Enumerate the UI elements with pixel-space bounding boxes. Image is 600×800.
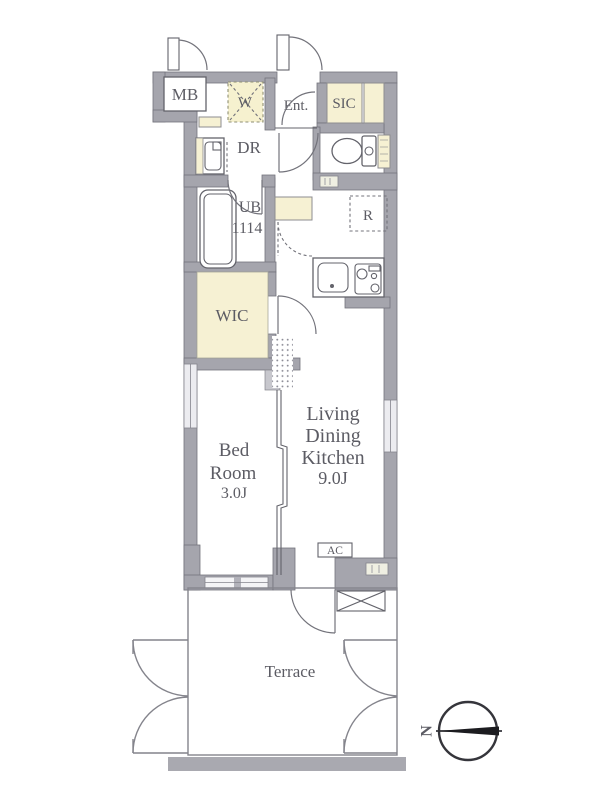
ldk-vent: [366, 563, 388, 575]
terrace-partition-right: [344, 640, 397, 753]
wic-door-arc: [278, 296, 316, 334]
ac-label: AC: [327, 545, 343, 557]
dressing-room: DR: [196, 117, 261, 174]
walk-in-closet-label: WIC: [215, 306, 248, 325]
unit-bath-label-1: UB: [239, 199, 261, 216]
terrace-door-arc: [291, 590, 335, 633]
entrance: Ent.: [275, 35, 322, 128]
shoe-closet: SIC: [327, 83, 384, 123]
toilet-icon: [332, 136, 376, 166]
ldk-label-3: Kitchen: [301, 447, 364, 469]
sliding-door-pocket: [272, 336, 293, 388]
floor-plan-drawing: MB W Ent. SIC: [0, 0, 600, 800]
cabinet-door-arc: [278, 222, 312, 256]
ldk-label-2: Dining: [305, 425, 361, 447]
hall-cabinet: [275, 197, 312, 256]
washer-label: W: [238, 95, 253, 111]
front-door-arc: [277, 35, 322, 70]
hallway: [275, 133, 318, 256]
compass-north-label: N: [419, 725, 436, 737]
terrace-partition-left: [133, 640, 188, 753]
kitchen-counter: [313, 258, 384, 297]
bedroom-bottom-window: [205, 577, 268, 588]
unit-bath: UB 1114: [200, 180, 262, 268]
walk-in-closet: WIC: [197, 272, 316, 358]
floor-plan: MB W Ent. SIC: [0, 0, 600, 800]
terrace-edge-bar: [168, 757, 406, 771]
bedroom-side-window: [184, 364, 197, 428]
terrace-label: Terrace: [265, 662, 316, 681]
terrace: Terrace: [133, 588, 406, 771]
meter-box-label: MB: [172, 85, 198, 104]
hall-vent: [320, 176, 338, 187]
unit-bath-label-2: 1114: [232, 220, 263, 237]
bedroom-label-2: Room: [210, 463, 257, 484]
air-conditioner: AC: [318, 543, 352, 557]
toilet-room: [332, 135, 390, 168]
ldk-label-1: Living: [306, 403, 359, 425]
refrigerator-label: R: [363, 208, 373, 224]
washing-machine-space: W: [228, 82, 263, 122]
compass-icon: N: [419, 702, 503, 760]
ldk-side-window: [384, 400, 397, 452]
dressing-room-label: DR: [237, 138, 261, 157]
room-partition: [277, 390, 287, 575]
living-dining-kitchen: Living Dining Kitchen 9.0J: [301, 403, 364, 488]
vanity-sink-icon: [196, 138, 227, 174]
bedroom-label-3: 3.0J: [221, 485, 247, 502]
service-box: [337, 591, 385, 611]
meter-box-door-arc: [168, 38, 207, 70]
bathtub-icon: [200, 190, 236, 268]
shoe-closet-label: SIC: [332, 96, 355, 112]
refrigerator-space: R: [350, 196, 387, 231]
hall-door-arc: [279, 133, 318, 172]
ldk-label-4: 9.0J: [318, 468, 348, 488]
bedroom: Bed Room 3.0J: [210, 440, 257, 502]
bedroom-label-1: Bed: [219, 440, 250, 461]
